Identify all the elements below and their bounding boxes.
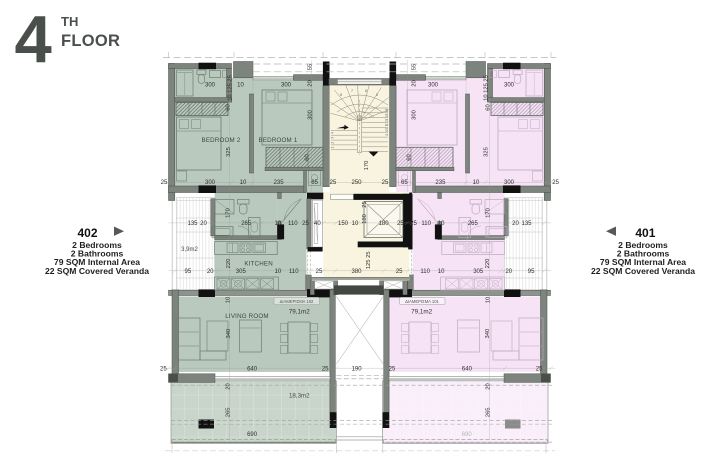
svg-text:10: 10 bbox=[240, 180, 247, 186]
svg-text:25: 25 bbox=[322, 367, 329, 373]
svg-text:401: 401 bbox=[635, 226, 655, 240]
svg-text:305: 305 bbox=[473, 269, 484, 275]
svg-text:20: 20 bbox=[308, 80, 314, 86]
svg-text:170: 170 bbox=[486, 208, 492, 218]
svg-text:9: 9 bbox=[385, 134, 389, 136]
svg-text:3: 3 bbox=[331, 137, 335, 139]
svg-text:7: 7 bbox=[351, 89, 353, 93]
svg-text:190: 190 bbox=[352, 367, 363, 373]
svg-text:14: 14 bbox=[385, 109, 389, 113]
svg-text:10: 10 bbox=[275, 221, 282, 227]
svg-text:10: 10 bbox=[385, 128, 389, 132]
svg-text:402: 402 bbox=[77, 226, 97, 240]
svg-text:110: 110 bbox=[288, 221, 298, 227]
svg-text:180: 180 bbox=[379, 221, 390, 227]
svg-text:265: 265 bbox=[241, 221, 252, 227]
svg-text:10 125 25: 10 125 25 bbox=[228, 75, 234, 101]
svg-text:8: 8 bbox=[340, 93, 342, 97]
svg-text:10: 10 bbox=[237, 83, 244, 89]
svg-text:10: 10 bbox=[275, 269, 282, 275]
svg-text:25: 25 bbox=[410, 221, 417, 227]
svg-text:25: 25 bbox=[362, 201, 368, 207]
svg-text:60: 60 bbox=[486, 104, 492, 110]
svg-text:12: 12 bbox=[385, 118, 389, 122]
svg-text:3,9m2: 3,9m2 bbox=[181, 247, 198, 253]
svg-text:BEDROOM 1: BEDROOM 1 bbox=[259, 137, 298, 144]
svg-text:25: 25 bbox=[161, 180, 168, 186]
svg-text:340: 340 bbox=[485, 329, 491, 339]
svg-text:110: 110 bbox=[421, 221, 431, 227]
svg-text:18,3m2: 18,3m2 bbox=[289, 393, 310, 400]
svg-text:265: 265 bbox=[468, 221, 479, 227]
svg-text:60: 60 bbox=[407, 154, 413, 160]
svg-text:25: 25 bbox=[397, 221, 404, 227]
svg-text:300: 300 bbox=[428, 83, 439, 89]
svg-text:135: 135 bbox=[187, 221, 198, 227]
svg-text:640: 640 bbox=[462, 367, 473, 373]
svg-text:10: 10 bbox=[473, 180, 480, 186]
svg-text:135: 135 bbox=[521, 221, 532, 227]
svg-text:150: 150 bbox=[338, 221, 349, 227]
svg-text:25: 25 bbox=[552, 180, 559, 186]
svg-text:BEDROOM 2: BEDROOM 2 bbox=[202, 137, 241, 144]
svg-text:22 SQM Covered Veranda: 22 SQM Covered Veranda bbox=[45, 266, 149, 276]
svg-text:235: 235 bbox=[435, 180, 446, 186]
svg-text:170: 170 bbox=[364, 161, 370, 171]
svg-text:340: 340 bbox=[226, 329, 232, 339]
svg-text:25: 25 bbox=[302, 221, 309, 227]
svg-text:10: 10 bbox=[486, 297, 492, 303]
svg-text:20: 20 bbox=[226, 383, 232, 389]
svg-text:25: 25 bbox=[316, 269, 323, 275]
svg-text:10: 10 bbox=[438, 269, 445, 275]
svg-text:300: 300 bbox=[205, 83, 216, 89]
svg-text:20: 20 bbox=[200, 221, 207, 227]
svg-text:4: 4 bbox=[331, 132, 335, 134]
svg-text:20: 20 bbox=[485, 383, 491, 389]
svg-text:5: 5 bbox=[376, 93, 378, 97]
svg-text:20: 20 bbox=[512, 221, 519, 227]
svg-text:65: 65 bbox=[401, 180, 408, 186]
svg-text:22 SQM Covered Veranda: 22 SQM Covered Veranda bbox=[591, 266, 695, 276]
svg-text:220: 220 bbox=[226, 259, 232, 269]
svg-text:2: 2 bbox=[331, 142, 335, 144]
svg-text:380: 380 bbox=[351, 269, 362, 275]
svg-text:95: 95 bbox=[528, 269, 535, 275]
svg-text:170: 170 bbox=[226, 208, 232, 218]
svg-text:325: 325 bbox=[226, 147, 232, 157]
svg-text:6: 6 bbox=[365, 89, 367, 93]
svg-text:60: 60 bbox=[226, 104, 232, 110]
svg-text:40: 40 bbox=[314, 221, 321, 227]
svg-text:10: 10 bbox=[226, 297, 232, 303]
svg-text:LIVING ROOM: LIVING ROOM bbox=[225, 313, 268, 320]
svg-text:ΔΙΑΜΕΡΙΣΜΑ 101: ΔΙΑΜΕΡΙΣΜΑ 101 bbox=[405, 299, 439, 304]
svg-text:TH: TH bbox=[61, 14, 78, 29]
svg-text:25: 25 bbox=[382, 180, 389, 186]
svg-text:79,1m2: 79,1m2 bbox=[289, 309, 311, 316]
svg-text:10 125 25: 10 125 25 bbox=[484, 75, 490, 101]
svg-text:FLOOR: FLOOR bbox=[61, 32, 120, 50]
svg-text:690: 690 bbox=[247, 432, 258, 438]
svg-text:640: 640 bbox=[247, 367, 258, 373]
svg-text:11: 11 bbox=[385, 123, 389, 127]
svg-text:180: 180 bbox=[362, 214, 368, 224]
svg-text:265: 265 bbox=[485, 407, 491, 417]
svg-text:25: 25 bbox=[330, 180, 337, 186]
svg-text:125 25: 125 25 bbox=[366, 251, 372, 269]
svg-text:KITCHEN: KITCHEN bbox=[244, 261, 273, 268]
svg-text:95: 95 bbox=[185, 269, 192, 275]
svg-text:300: 300 bbox=[281, 83, 292, 89]
svg-text:690: 690 bbox=[462, 432, 473, 438]
svg-text:10: 10 bbox=[352, 221, 359, 227]
svg-text:20: 20 bbox=[505, 269, 512, 275]
svg-text:20: 20 bbox=[207, 269, 214, 275]
svg-text:300: 300 bbox=[504, 83, 515, 89]
svg-text:110: 110 bbox=[420, 269, 430, 275]
svg-text:300: 300 bbox=[412, 110, 418, 120]
svg-text:1: 1 bbox=[331, 146, 335, 148]
svg-text:300: 300 bbox=[504, 180, 515, 186]
svg-text:265: 265 bbox=[226, 407, 232, 417]
svg-text:10: 10 bbox=[438, 221, 445, 227]
svg-text:25: 25 bbox=[160, 367, 167, 373]
svg-text:25: 25 bbox=[389, 367, 396, 373]
svg-text:325: 325 bbox=[484, 147, 490, 157]
svg-text:305: 305 bbox=[236, 269, 247, 275]
svg-text:4: 4 bbox=[15, 3, 52, 78]
svg-text:ΔΙΑΜΕΡΙΣΜΑ 102: ΔΙΑΜΕΡΙΣΜΑ 102 bbox=[280, 299, 314, 304]
svg-text:65: 65 bbox=[311, 180, 318, 186]
svg-text:13: 13 bbox=[385, 113, 389, 117]
svg-text:20: 20 bbox=[412, 80, 418, 86]
svg-text:55: 55 bbox=[412, 64, 418, 70]
svg-text:25: 25 bbox=[536, 367, 543, 373]
svg-text:25: 25 bbox=[396, 269, 403, 275]
svg-text:235: 235 bbox=[274, 180, 285, 186]
svg-text:55: 55 bbox=[308, 64, 314, 70]
svg-text:60: 60 bbox=[305, 154, 311, 160]
svg-text:220: 220 bbox=[485, 259, 491, 269]
svg-text:300: 300 bbox=[308, 110, 314, 120]
svg-text:79,1m2: 79,1m2 bbox=[411, 309, 433, 316]
svg-text:300: 300 bbox=[205, 180, 216, 186]
svg-text:110: 110 bbox=[289, 269, 299, 275]
svg-text:250: 250 bbox=[351, 180, 362, 186]
